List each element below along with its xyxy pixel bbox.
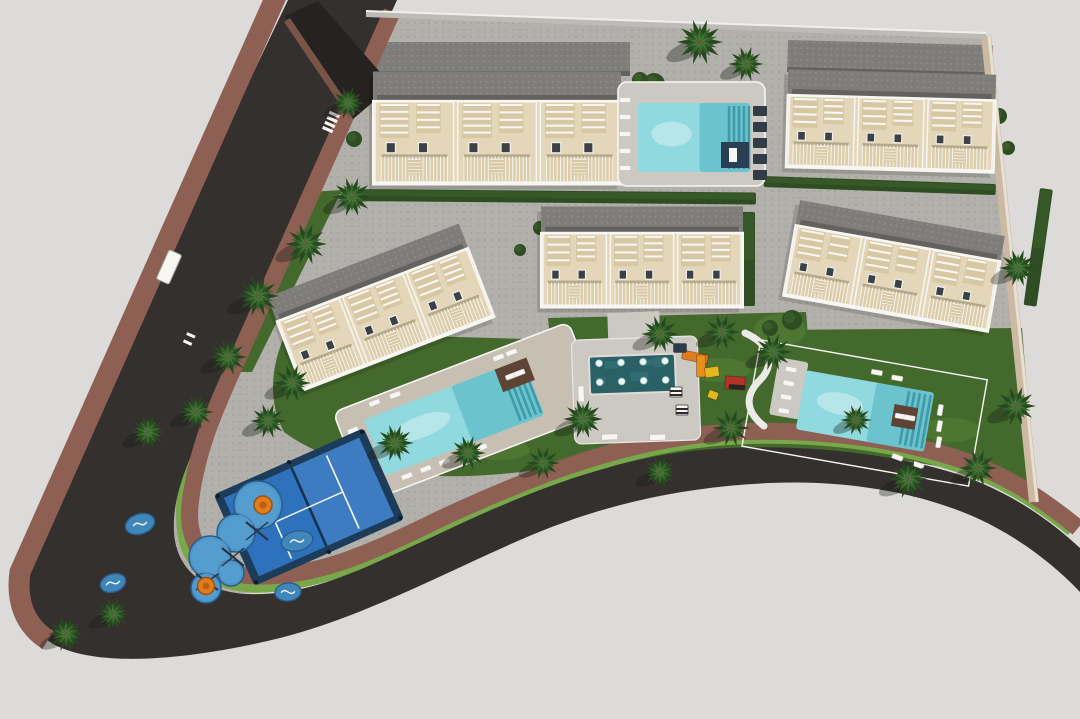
lounger	[620, 115, 631, 120]
spa-texture	[605, 361, 619, 369]
palm-trunk	[256, 294, 260, 298]
picnic-table	[670, 387, 682, 397]
play-equipment	[697, 355, 706, 377]
spa-jet	[596, 360, 603, 367]
spa-jet	[662, 376, 669, 383]
shade-panel	[753, 122, 767, 132]
bench	[578, 386, 585, 402]
palm-trunk	[466, 451, 469, 454]
palm-trunk	[976, 466, 980, 470]
roof-slab	[368, 42, 630, 76]
palm-trunk	[290, 381, 294, 385]
spa-jet	[618, 378, 625, 385]
spa-jet	[618, 359, 625, 366]
bench	[602, 434, 618, 441]
shade-panel	[753, 170, 767, 180]
palm-trunk	[744, 62, 747, 65]
palm-trunk	[346, 101, 349, 104]
palm-trunk	[350, 195, 354, 199]
palm-trunk	[729, 426, 733, 430]
palm-trunk	[581, 417, 585, 421]
bush-highlight	[348, 133, 357, 142]
towel	[729, 148, 737, 162]
picnic-table	[676, 405, 688, 415]
palm-trunk	[226, 355, 230, 359]
bush-highlight	[515, 245, 522, 252]
palm-trunk	[1014, 404, 1018, 408]
palm-trunk	[146, 430, 149, 433]
building-1	[369, 72, 621, 190]
building-2	[782, 69, 997, 178]
palm-trunk	[906, 477, 910, 481]
spa-jet	[640, 377, 647, 384]
palm-trunk	[64, 632, 67, 635]
palm-trunk	[855, 419, 858, 422]
play-equipment	[704, 366, 719, 378]
spa-jet	[596, 379, 603, 386]
shade-panel	[753, 106, 767, 116]
lounger	[620, 166, 631, 171]
spa-jet	[661, 357, 668, 364]
building-4	[537, 207, 743, 313]
spa-jet	[640, 358, 647, 365]
bush-highlight	[1002, 142, 1010, 150]
bush-highlight	[764, 322, 773, 331]
palm-trunk	[393, 441, 397, 445]
palm-trunk	[541, 461, 544, 464]
play-equipment	[729, 384, 745, 389]
palm-trunk	[658, 332, 662, 336]
water-sheen	[651, 122, 691, 147]
palm-trunk	[111, 612, 114, 615]
palm-trunk	[1016, 266, 1020, 270]
lounger	[620, 98, 631, 103]
palm-trunk	[658, 470, 661, 473]
palm-trunk	[304, 242, 308, 246]
shade-panel	[753, 138, 767, 148]
pool-top	[618, 82, 767, 186]
lounger	[620, 132, 631, 137]
palm-trunk	[194, 410, 197, 413]
bench	[650, 434, 666, 441]
bush-highlight	[634, 74, 643, 83]
shade-panel	[753, 154, 767, 164]
bush-highlight	[784, 312, 795, 323]
site-plan-svg	[0, 0, 1080, 719]
palm-trunk	[266, 419, 269, 422]
palm-trunk	[771, 350, 775, 354]
palm-trunk	[720, 330, 723, 333]
play-equipment	[674, 344, 687, 353]
palm-trunk	[698, 40, 702, 44]
site-plan-rendering	[0, 0, 1080, 719]
lounger	[620, 149, 631, 154]
